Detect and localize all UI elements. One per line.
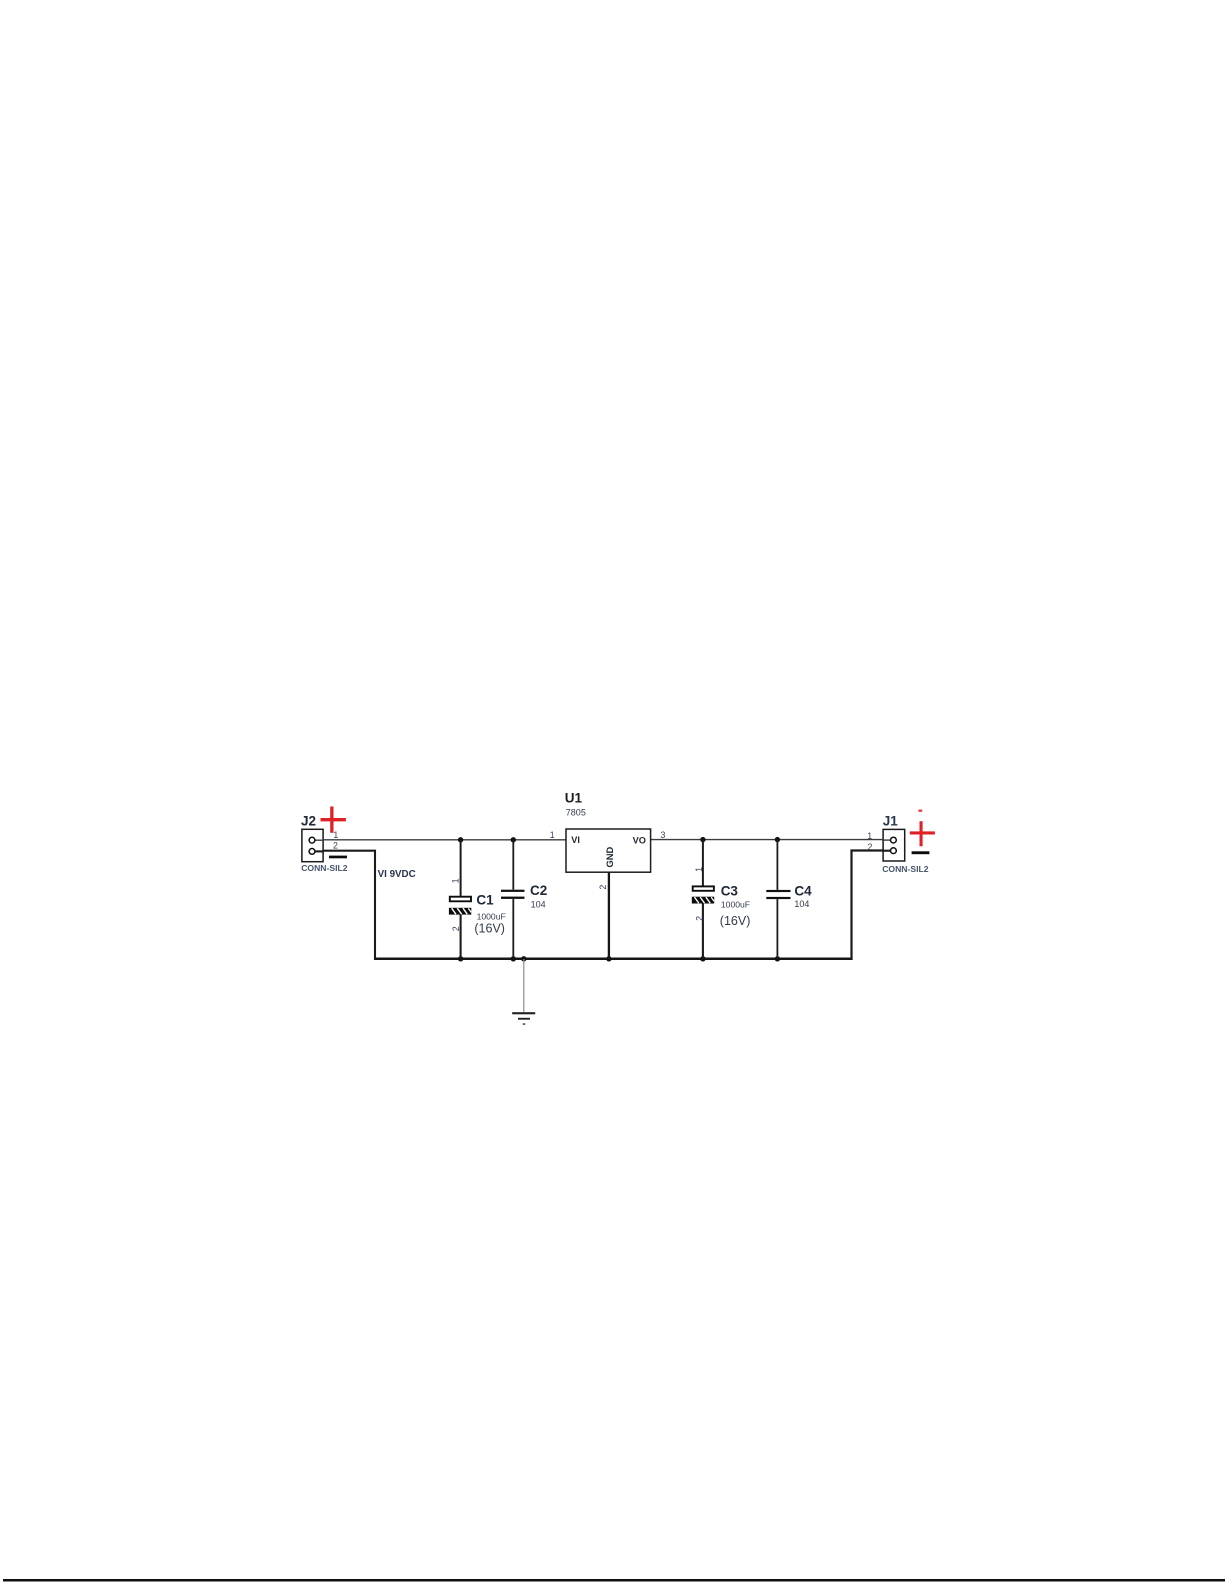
svg-text:U1: U1 bbox=[565, 790, 583, 805]
svg-text:2: 2 bbox=[694, 916, 704, 921]
svg-text:1000uF: 1000uF bbox=[477, 911, 506, 921]
svg-text:7805: 7805 bbox=[566, 808, 586, 818]
svg-text:3: 3 bbox=[661, 830, 666, 840]
svg-text:2: 2 bbox=[868, 842, 873, 852]
svg-text:104: 104 bbox=[531, 900, 546, 910]
svg-text:VI: VI bbox=[571, 835, 580, 845]
svg-text:J1: J1 bbox=[883, 814, 899, 829]
svg-text:GND: GND bbox=[604, 846, 615, 867]
svg-text:1: 1 bbox=[550, 830, 555, 840]
svg-text:J2: J2 bbox=[301, 813, 316, 828]
svg-text:C4: C4 bbox=[794, 883, 812, 898]
svg-text:104: 104 bbox=[794, 899, 809, 909]
svg-text:(16V): (16V) bbox=[720, 914, 751, 928]
svg-text:CONN-SIL2: CONN-SIL2 bbox=[301, 863, 348, 873]
svg-text:VI 9VDC: VI 9VDC bbox=[378, 869, 416, 880]
svg-text:C3: C3 bbox=[721, 883, 739, 898]
svg-text:(16V): (16V) bbox=[474, 922, 505, 936]
svg-text:2: 2 bbox=[333, 840, 338, 850]
svg-text:1000uF: 1000uF bbox=[721, 899, 750, 909]
svg-text:C1: C1 bbox=[476, 893, 494, 908]
svg-text:C2: C2 bbox=[530, 883, 547, 898]
svg-text:CONN-SIL2: CONN-SIL2 bbox=[882, 864, 929, 874]
svg-text:1: 1 bbox=[867, 831, 872, 841]
svg-text:2: 2 bbox=[598, 885, 608, 890]
svg-text:1: 1 bbox=[694, 867, 704, 872]
svg-text:1: 1 bbox=[451, 878, 461, 883]
svg-text:2: 2 bbox=[451, 926, 461, 931]
svg-text:VO: VO bbox=[633, 835, 646, 845]
svg-text:1: 1 bbox=[333, 830, 338, 840]
